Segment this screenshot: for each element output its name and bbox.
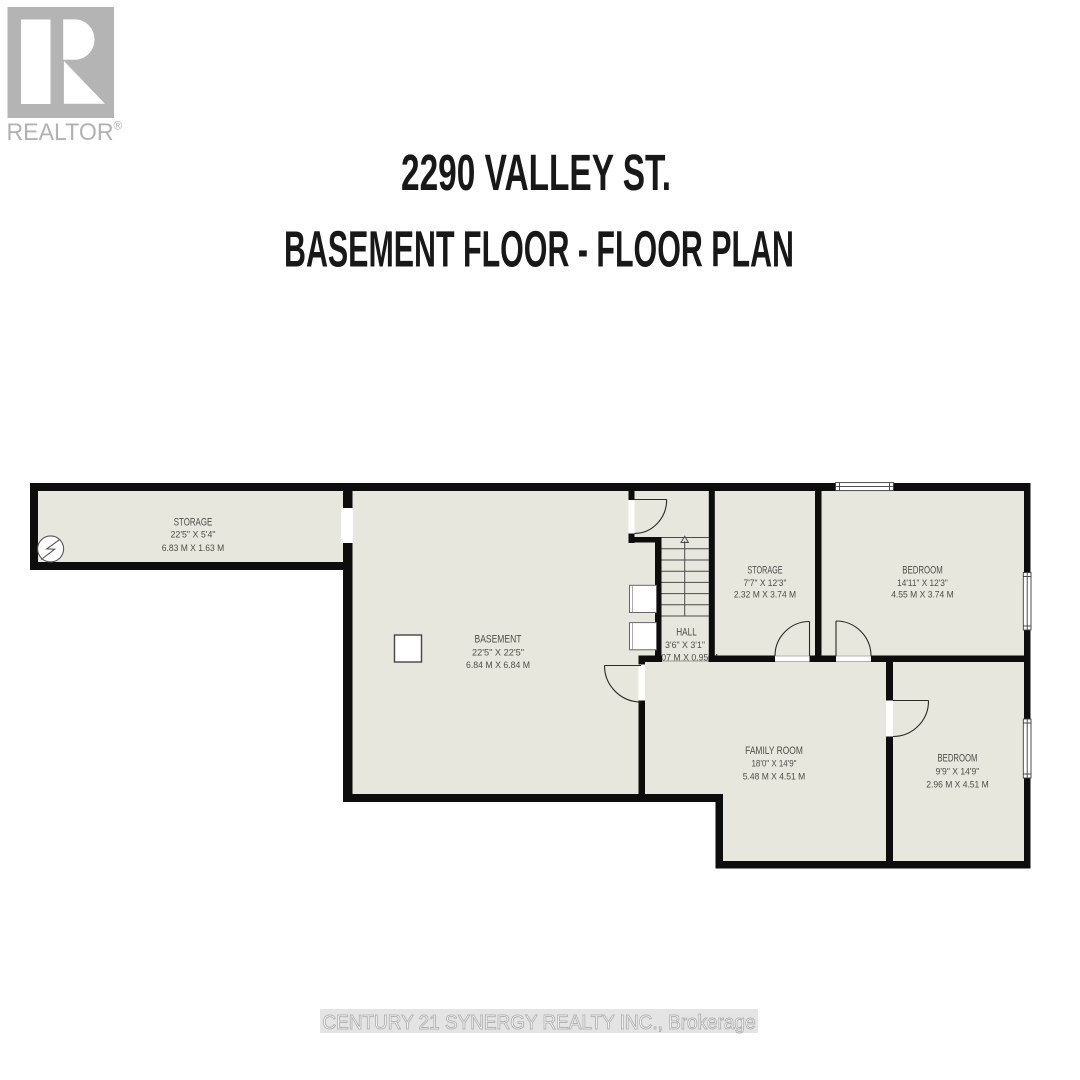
svg-text:18'0" X 14'9": 18'0" X 14'9" <box>752 758 797 769</box>
svg-text:HALL: HALL <box>676 626 697 638</box>
svg-text:BEDROOM: BEDROOM <box>938 752 978 764</box>
svg-text:BASEMENT: BASEMENT <box>475 634 522 646</box>
svg-text:STORAGE: STORAGE <box>174 517 213 529</box>
svg-text:5.48 M X 4.51 M: 5.48 M X 4.51 M <box>743 771 806 782</box>
svg-text:9'9" X 14'9": 9'9" X 14'9" <box>936 766 980 777</box>
svg-text:7'7" X 12'3": 7'7" X 12'3" <box>744 577 787 588</box>
svg-text:4.55 M X 3.74 M: 4.55 M X 3.74 M <box>891 589 954 600</box>
svg-text:3'6" X 3'1": 3'6" X 3'1" <box>665 639 705 650</box>
svg-text:6.83 M X 1.63 M: 6.83 M X 1.63 M <box>162 542 225 553</box>
svg-text:2290 VALLEY ST.: 2290 VALLEY ST. <box>401 144 671 201</box>
svg-text:FAMILY ROOM: FAMILY ROOM <box>745 745 803 757</box>
svg-text:2.32 M X 3.74 M: 2.32 M X 3.74 M <box>734 589 796 600</box>
svg-text:BASEMENT FLOOR - FLOOR PLAN: BASEMENT FLOOR - FLOOR PLAN <box>284 221 794 278</box>
svg-text:6.84 M X 6.84 M: 6.84 M X 6.84 M <box>466 659 530 670</box>
svg-text:®: ® <box>114 119 123 133</box>
svg-text:STORAGE: STORAGE <box>747 564 782 576</box>
svg-text:22'5" X 22'5": 22'5" X 22'5" <box>472 646 524 657</box>
svg-text:22'5" X 5'4": 22'5" X 5'4" <box>171 529 216 540</box>
svg-text:2.96 M X 4.51 M: 2.96 M X 4.51 M <box>926 779 989 790</box>
svg-text:14'11" X 12'3": 14'11" X 12'3" <box>897 577 948 588</box>
svg-text:CENTURY 21 SYNERGY REALTY INC.: CENTURY 21 SYNERGY REALTY INC., Brokerag… <box>323 1011 756 1034</box>
svg-text:BEDROOM: BEDROOM <box>902 564 943 576</box>
svg-text:REALTOR: REALTOR <box>7 119 114 146</box>
